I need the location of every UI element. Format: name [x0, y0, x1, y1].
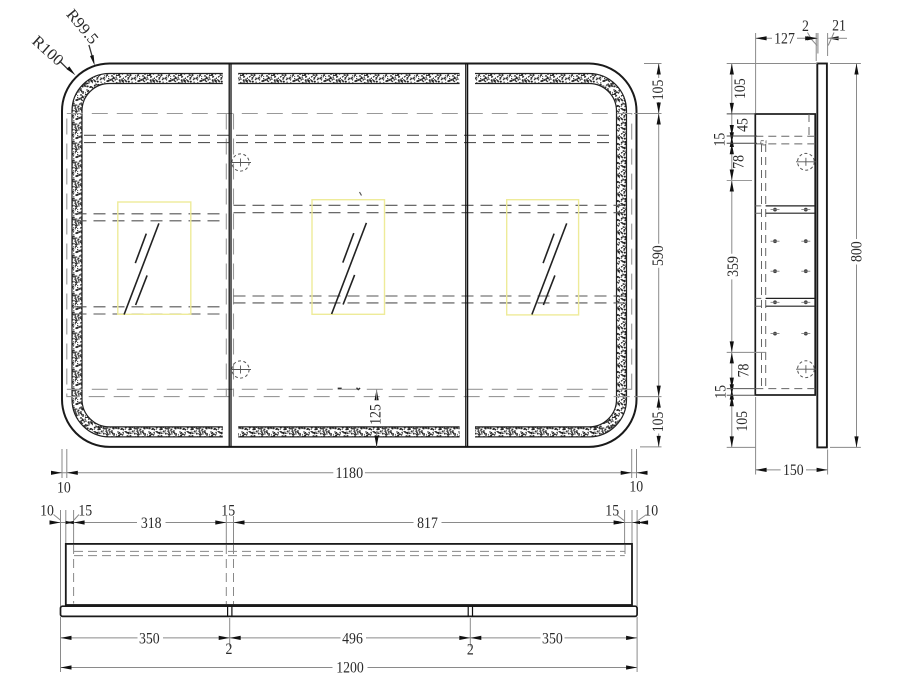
svg-text:2: 2	[467, 641, 474, 658]
svg-text:10: 10	[57, 480, 71, 497]
svg-text:2: 2	[802, 18, 809, 35]
svg-text:1180: 1180	[336, 465, 364, 482]
svg-text:78: 78	[736, 364, 753, 378]
svg-text:125: 125	[367, 404, 384, 425]
svg-text:R100: R100	[28, 33, 66, 70]
svg-text:590: 590	[650, 245, 667, 266]
svg-text:R99.5: R99.5	[63, 6, 102, 48]
svg-text:800: 800	[849, 241, 866, 262]
svg-text:150: 150	[783, 462, 804, 479]
svg-text:496: 496	[342, 631, 363, 648]
svg-text:10: 10	[644, 503, 658, 520]
svg-text:78: 78	[731, 155, 748, 169]
svg-text:15: 15	[711, 133, 728, 147]
svg-text:359: 359	[725, 256, 742, 277]
svg-text:105: 105	[650, 80, 667, 101]
svg-text:105: 105	[734, 411, 751, 432]
svg-text:15: 15	[221, 503, 235, 520]
svg-text:15: 15	[713, 385, 730, 399]
svg-text:105: 105	[732, 78, 749, 99]
svg-text:10: 10	[40, 503, 54, 520]
svg-text:45: 45	[734, 118, 751, 132]
svg-text:350: 350	[542, 630, 563, 647]
svg-text:21: 21	[832, 18, 846, 35]
svg-text:350: 350	[139, 631, 160, 648]
svg-text:318: 318	[141, 515, 162, 532]
svg-text:1200: 1200	[336, 660, 364, 677]
svg-text:105: 105	[650, 412, 667, 433]
svg-text:10: 10	[629, 479, 643, 496]
svg-text:817: 817	[417, 515, 438, 532]
svg-text:15: 15	[78, 503, 92, 520]
svg-text:15: 15	[605, 503, 619, 520]
svg-text:127: 127	[774, 31, 795, 48]
svg-text:2: 2	[226, 641, 233, 658]
